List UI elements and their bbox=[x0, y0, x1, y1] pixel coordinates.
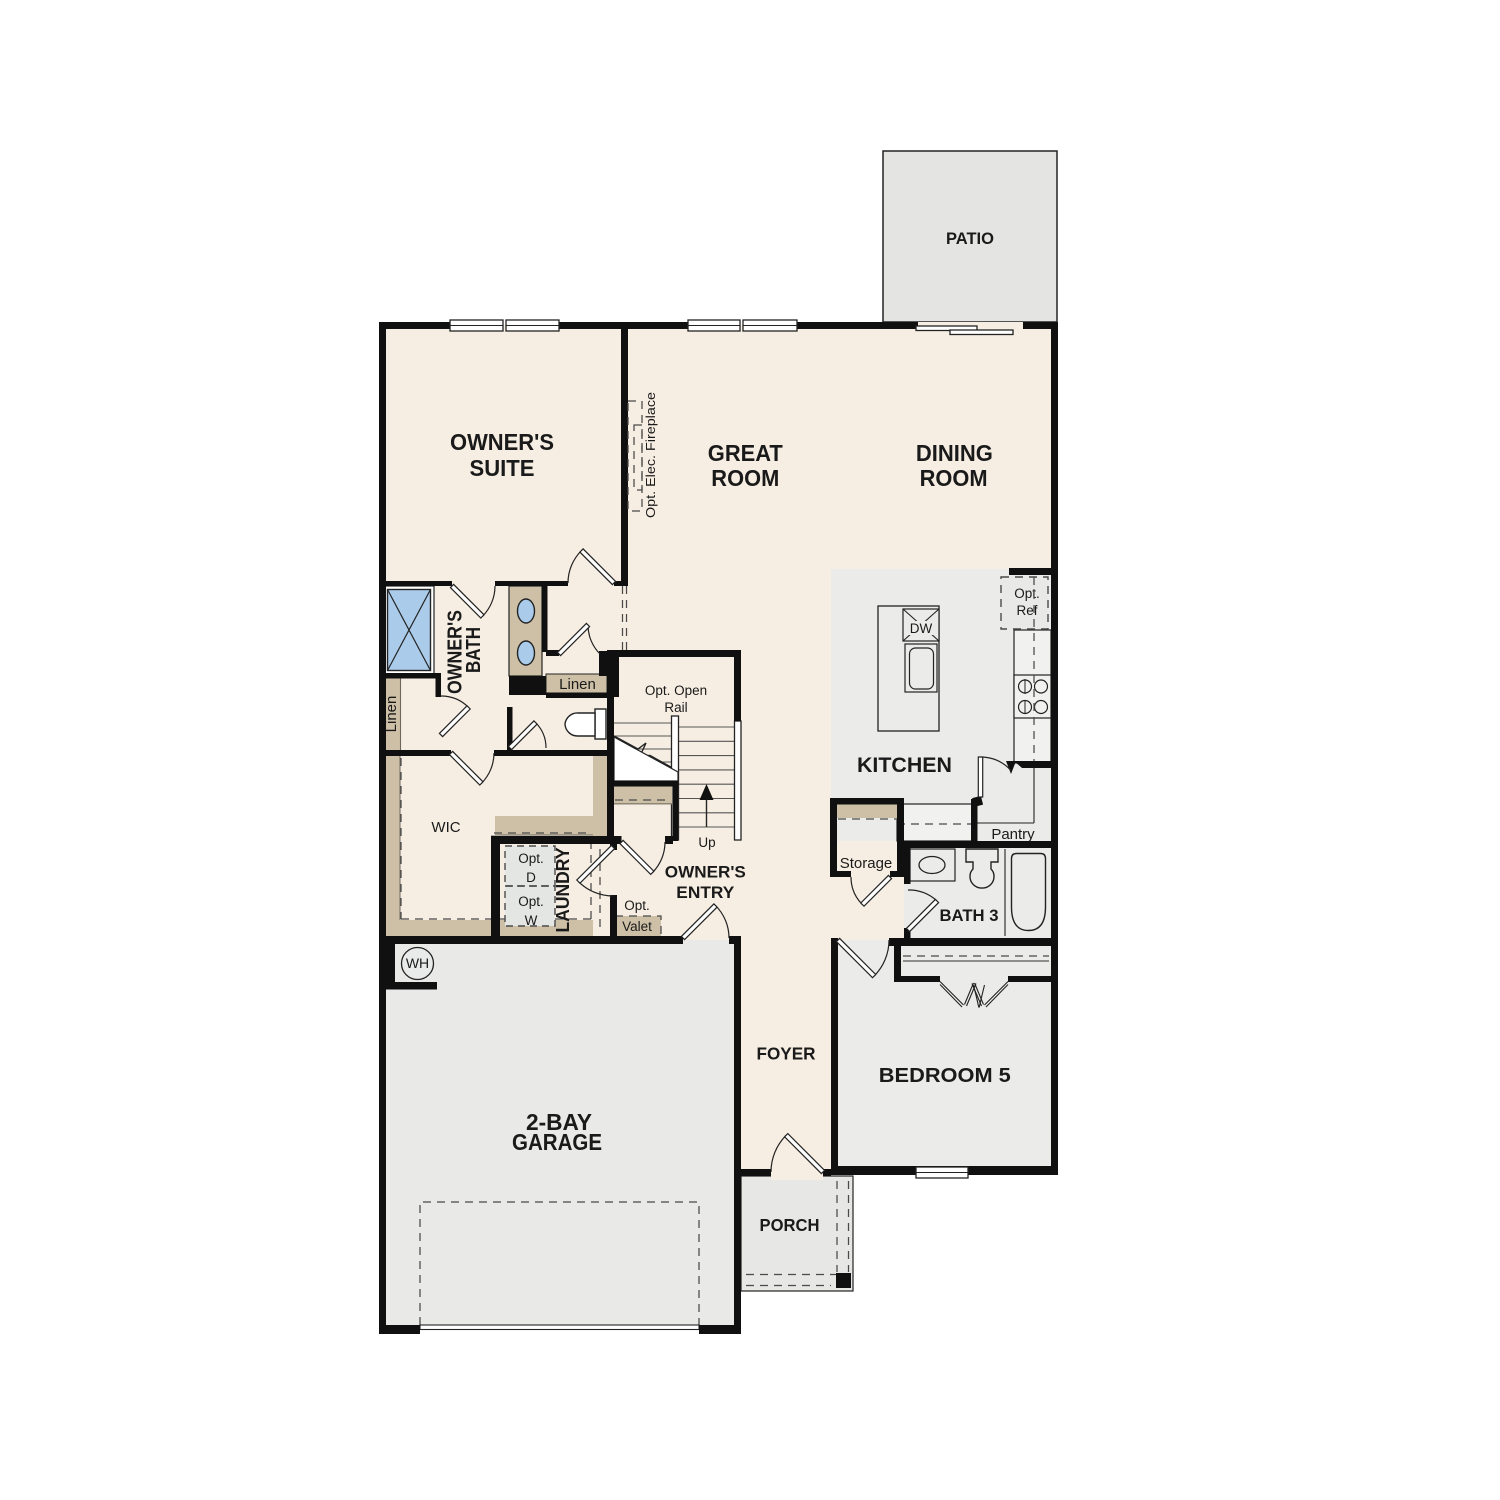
svg-text:LAUNDRY: LAUNDRY bbox=[553, 848, 573, 933]
svg-text:BATH: BATH bbox=[463, 627, 485, 673]
svg-text:BATH 3: BATH 3 bbox=[940, 906, 999, 925]
svg-text:ROOM: ROOM bbox=[920, 465, 988, 491]
svg-text:FOYER: FOYER bbox=[757, 1044, 816, 1064]
svg-text:Pantry: Pantry bbox=[991, 826, 1035, 843]
svg-text:D: D bbox=[526, 870, 536, 885]
svg-text:PORCH: PORCH bbox=[760, 1215, 820, 1235]
svg-text:Opt.: Opt. bbox=[1014, 586, 1040, 601]
svg-text:Opt.: Opt. bbox=[518, 851, 544, 866]
svg-text:OWNER'S: OWNER'S bbox=[665, 864, 746, 882]
svg-text:WH: WH bbox=[406, 955, 429, 971]
svg-text:ENTRY: ENTRY bbox=[676, 884, 734, 902]
svg-text:BEDROOM 5: BEDROOM 5 bbox=[879, 1065, 1011, 1087]
svg-text:PATIO: PATIO bbox=[946, 230, 994, 248]
svg-text:Rail: Rail bbox=[664, 700, 687, 715]
svg-text:Up: Up bbox=[698, 835, 715, 850]
svg-text:Storage: Storage bbox=[840, 855, 893, 872]
svg-text:Valet: Valet bbox=[622, 919, 652, 934]
svg-text:KITCHEN: KITCHEN bbox=[857, 753, 952, 777]
svg-text:WIC: WIC bbox=[431, 819, 460, 836]
svg-text:W: W bbox=[525, 913, 538, 928]
svg-text:Opt. Elec. Fireplace: Opt. Elec. Fireplace bbox=[643, 392, 658, 518]
svg-text:SUITE: SUITE bbox=[470, 455, 535, 481]
svg-text:Opt.: Opt. bbox=[624, 898, 650, 913]
svg-text:DINING: DINING bbox=[916, 440, 993, 466]
svg-text:DW: DW bbox=[910, 621, 933, 636]
svg-text:OWNER'S: OWNER'S bbox=[450, 429, 554, 455]
svg-text:GREAT: GREAT bbox=[708, 440, 783, 466]
svg-text:Opt. Open: Opt. Open bbox=[645, 683, 707, 698]
svg-text:Linen: Linen bbox=[559, 676, 596, 693]
svg-text:ROOM: ROOM bbox=[711, 465, 779, 491]
svg-text:GARAGE: GARAGE bbox=[512, 1129, 602, 1155]
svg-text:Opt.: Opt. bbox=[518, 894, 544, 909]
